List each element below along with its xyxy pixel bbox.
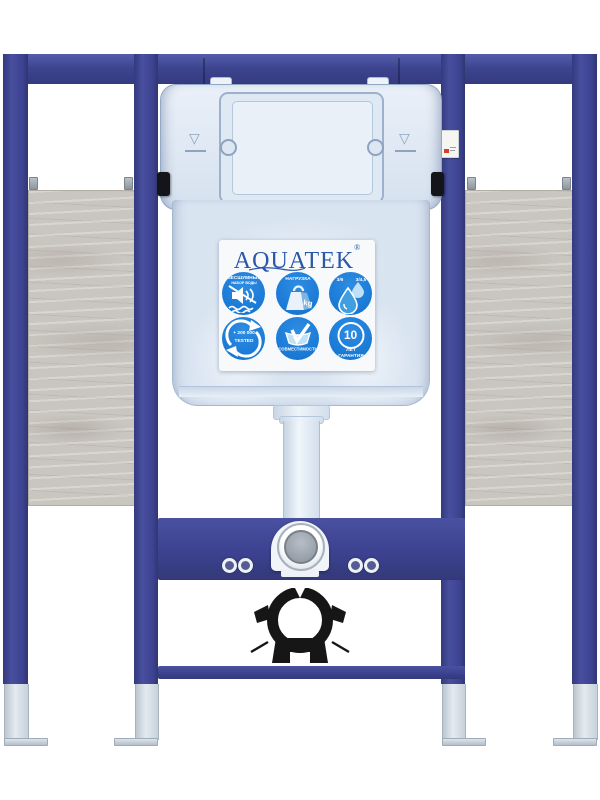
top-bar-seam: [203, 58, 205, 84]
wood-panel-left: [28, 190, 136, 506]
water-level-mark-left: ▽: [189, 131, 200, 145]
foot-inner-left: [135, 684, 159, 740]
sticker-logo-mark: [444, 149, 449, 153]
crossbar-rivet: [348, 558, 363, 573]
warranty-years: 10: [344, 328, 357, 342]
flush-valve-disc: [284, 530, 318, 564]
wood-panel-right: [465, 190, 573, 506]
water-level-mark-right: ▽: [399, 131, 410, 145]
badge-flush-modes: 3/6 3/4,5: [329, 272, 372, 315]
badge-load-title: НАГРУЗКА: [285, 276, 310, 281]
frame-post-outer-right: [572, 54, 597, 684]
cistern-top: ▽ ▽: [160, 84, 442, 210]
pipe-clamp: [248, 588, 352, 665]
foot-plate-outer-right: [553, 738, 597, 746]
tested-label: TESTED: [234, 338, 253, 343]
panel-screw-cap-right: [367, 139, 384, 156]
warranty-line1: ЛЕТ: [346, 347, 356, 352]
water-level-line-left: [185, 150, 206, 152]
compatibility-title: СОВМЕСТИМОСТЬ: [278, 347, 317, 352]
badge-silent-title: БЕСШУМНЫЙ: [227, 275, 261, 280]
crossbar-rivet: [222, 558, 237, 573]
frame-top-bar: [3, 54, 597, 84]
foot-plate-outer-left: [4, 738, 48, 746]
water-drop-icon: [336, 280, 366, 314]
panel-screw: [124, 177, 133, 190]
badge-silent: БЕСШУМНЫЙ НАБОР ВОДЫ: [222, 272, 265, 315]
foot-outer-left: [4, 684, 29, 740]
badge-warranty: 10 ЛЕТ ГАРАНТИЯ: [329, 317, 372, 360]
badge-compatibility: СОВМЕСТИМОСТЬ: [276, 317, 319, 360]
inspection-panel-inner: [232, 101, 373, 195]
badge-load: НАГРУЗКА kg: [276, 272, 319, 315]
panel-screw: [29, 177, 38, 190]
foot-plate-inner-left: [114, 738, 158, 746]
brand-label: AQUATEK® БЕСШУМНЫЙ НАБОР ВОДЫ НАГРУЗКА: [219, 240, 375, 371]
warranty-line2: ГАРАНТИЯ: [338, 353, 363, 358]
check-basin-icon: [283, 323, 313, 347]
badge-tested: + 200 000 TESTED: [222, 317, 265, 360]
crossbar-rivet: [238, 558, 253, 573]
panel-screw-cap-left: [220, 139, 237, 156]
tested-count: + 200 000: [233, 330, 254, 335]
cistern-bottom-rim: [179, 386, 423, 397]
foot-inner-right: [442, 684, 466, 740]
water-level-line-right: [395, 150, 416, 152]
bottom-crossbar: [158, 666, 465, 679]
crossbar-rivet: [364, 558, 379, 573]
flush-pipe: [283, 421, 320, 520]
certification-sticker: [441, 130, 459, 158]
foot-outer-right: [573, 684, 598, 740]
panel-screw: [467, 177, 476, 190]
foot-plate-inner-right: [442, 738, 486, 746]
panel-screw: [562, 177, 571, 190]
sticker-line: [450, 147, 456, 148]
top-bar-seam: [398, 58, 400, 84]
weight-icon: kg: [282, 284, 314, 312]
registered-mark: ®: [354, 243, 360, 252]
weight-unit-label: kg: [303, 298, 314, 308]
warranty-years-ring: 10: [337, 322, 364, 349]
muted-speaker-icon: [226, 285, 261, 313]
tank-clip-left: [157, 172, 170, 196]
frame-post-outer-left: [3, 54, 28, 684]
sticker-line: [450, 150, 455, 151]
tank-clip-right: [431, 172, 444, 196]
frame-post-inner-left: [134, 54, 158, 684]
product-photo: ▽ ▽ AQUATEK® БЕСШУМНЫЙ НАБОР ВОДЫ: [0, 0, 600, 800]
